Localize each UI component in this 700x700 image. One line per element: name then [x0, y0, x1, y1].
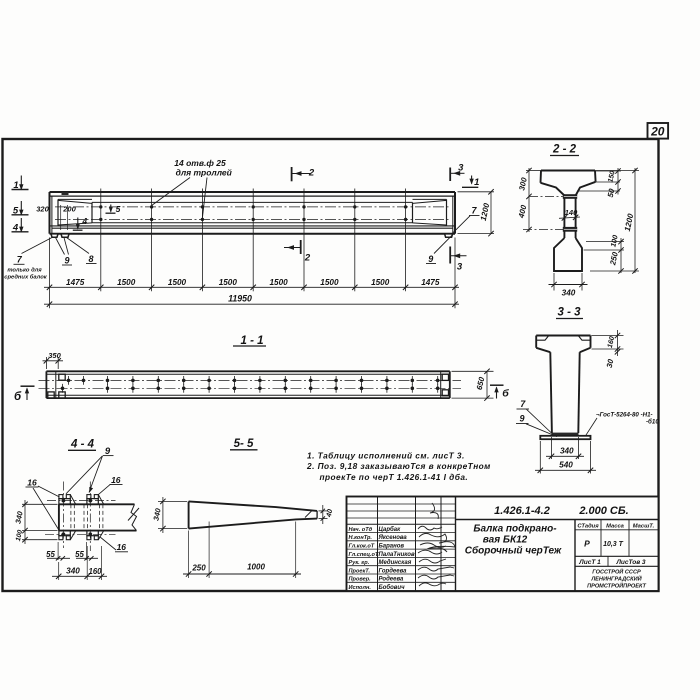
svg-text:Баранов: Баранов [379, 544, 405, 550]
svg-text:СТадия: СТадия [577, 524, 599, 530]
svg-text:2.000 СБ.: 2.000 СБ. [578, 505, 628, 517]
svg-text:-б10: -б10 [646, 419, 659, 426]
svg-text:340: 340 [66, 567, 80, 576]
svg-text:ЛисТов 3: ЛисТов 3 [615, 559, 645, 566]
svg-text:9: 9 [428, 254, 433, 264]
svg-text:8: 8 [88, 254, 93, 264]
svg-text:МасшТ.: МасшТ. [633, 524, 655, 530]
svg-text:Гл.кок.оТ: Гл.кок.оТ [349, 544, 375, 550]
svg-text:9: 9 [519, 414, 524, 424]
svg-text:1475: 1475 [421, 278, 440, 287]
svg-text:Провер.: Провер. [349, 577, 372, 583]
svg-text:только для: только для [7, 268, 42, 274]
svg-text:Царбак: Царбак [379, 526, 402, 533]
svg-text:3 - 3: 3 - 3 [557, 307, 581, 319]
svg-text:1500: 1500 [371, 278, 390, 287]
svg-text:Мединская: Мединская [379, 560, 412, 566]
svg-text:1500: 1500 [320, 278, 339, 287]
svg-text:Исполн.: Исполн. [349, 585, 372, 591]
svg-text:55: 55 [75, 550, 84, 559]
svg-text:2 - 2: 2 - 2 [552, 144, 577, 156]
svg-text:1500: 1500 [269, 278, 288, 287]
svg-text:14 отв.ф 25: 14 отв.ф 25 [174, 158, 226, 168]
svg-text:16: 16 [27, 477, 37, 487]
svg-text:ГОССТРОЙ СССР: ГОССТРОЙ СССР [592, 568, 641, 576]
svg-text:2: 2 [304, 253, 311, 264]
svg-text:1000: 1000 [247, 563, 265, 572]
svg-text:ПРОМСТРОЙПРОЕКТ: ПРОМСТРОЙПРОЕКТ [587, 582, 646, 590]
svg-text:540: 540 [559, 460, 573, 469]
svg-text:5- 5: 5- 5 [234, 438, 254, 450]
svg-text:Яксенова: Яксенова [378, 535, 408, 541]
svg-text:Масса: Масса [606, 524, 625, 530]
svg-text:Гл.спец.оТ: Гл.спец.оТ [349, 552, 379, 558]
svg-text:ПалаТников: ПалаТников [379, 552, 415, 558]
svg-text:20: 20 [650, 125, 665, 139]
svg-text:1500: 1500 [219, 278, 238, 287]
svg-text:140: 140 [565, 208, 578, 217]
svg-text:16: 16 [117, 542, 127, 552]
svg-text:средних балок: средних балок [4, 273, 47, 280]
svg-text:1. Таблицу исполнений см. лис: 1. Таблицу исполнений см. лисТ 3. [307, 450, 465, 460]
svg-text:250: 250 [191, 564, 206, 573]
svg-text:3: 3 [458, 163, 464, 174]
svg-text:10,3 Т: 10,3 Т [603, 541, 624, 548]
svg-text:9: 9 [64, 256, 69, 266]
svg-text:1.426.1-4.2: 1.426.1-4.2 [494, 505, 550, 517]
svg-text:б: б [502, 388, 509, 400]
svg-text:3: 3 [457, 262, 463, 273]
svg-text:340: 340 [560, 446, 574, 455]
svg-text:ПроекТ.: ПроекТ. [349, 568, 371, 574]
svg-text:для троллей: для троллей [176, 168, 233, 178]
svg-text:160: 160 [88, 567, 102, 576]
svg-text:Рук. гр.: Рук. гр. [349, 560, 370, 566]
svg-text:1500: 1500 [168, 278, 187, 287]
svg-text:1: 1 [474, 177, 479, 188]
svg-text:11950: 11950 [228, 294, 252, 304]
svg-text:16: 16 [111, 475, 121, 485]
svg-text:Родеева: Родеева [379, 577, 405, 583]
svg-text:Сборочный черТеж: Сборочный черТеж [465, 545, 562, 557]
svg-text:проекТе по черТ 1.426.1-41: проекТе по черТ 1.426.1-41 I дба. [320, 472, 469, 482]
svg-text:1500: 1500 [117, 278, 136, 287]
svg-text:Р: Р [584, 539, 590, 549]
svg-text:1 - 1: 1 - 1 [240, 335, 263, 347]
svg-text:Гордеева: Гордеева [379, 568, 408, 574]
svg-text:б: б [14, 391, 22, 403]
svg-text:вая БК12: вая БК12 [483, 535, 528, 546]
svg-text:Нач. оТд: Нач. оТд [349, 527, 373, 533]
svg-text:Бобович: Бобович [379, 584, 406, 591]
svg-text:2: 2 [308, 168, 315, 179]
svg-text:Балка подкрано-: Балка подкрано- [473, 524, 557, 535]
svg-text:320: 320 [36, 205, 49, 214]
svg-text:ЛисТ 1: ЛисТ 1 [578, 559, 601, 566]
svg-text:4 - 4: 4 - 4 [70, 438, 95, 450]
svg-text:350: 350 [48, 351, 61, 360]
svg-text:¬ГосТ-5264-80 -Н1-: ¬ГосТ-5264-80 -Н1- [596, 412, 653, 419]
svg-text:ЛЕНИНГРАДСКИЙ: ЛЕНИНГРАДСКИЙ [590, 575, 642, 583]
svg-text:5: 5 [116, 204, 121, 214]
svg-text:2. Поз. 9,18 заказываюТся в ко: 2. Поз. 9,18 заказываюТся в конкреТном [306, 461, 491, 471]
svg-text:Н.конТр.: Н.конТр. [349, 535, 373, 541]
svg-text:340: 340 [562, 289, 576, 298]
svg-text:4: 4 [81, 216, 87, 226]
svg-text:55: 55 [46, 550, 55, 559]
svg-text:1475: 1475 [66, 278, 85, 287]
svg-text:200: 200 [62, 205, 76, 214]
